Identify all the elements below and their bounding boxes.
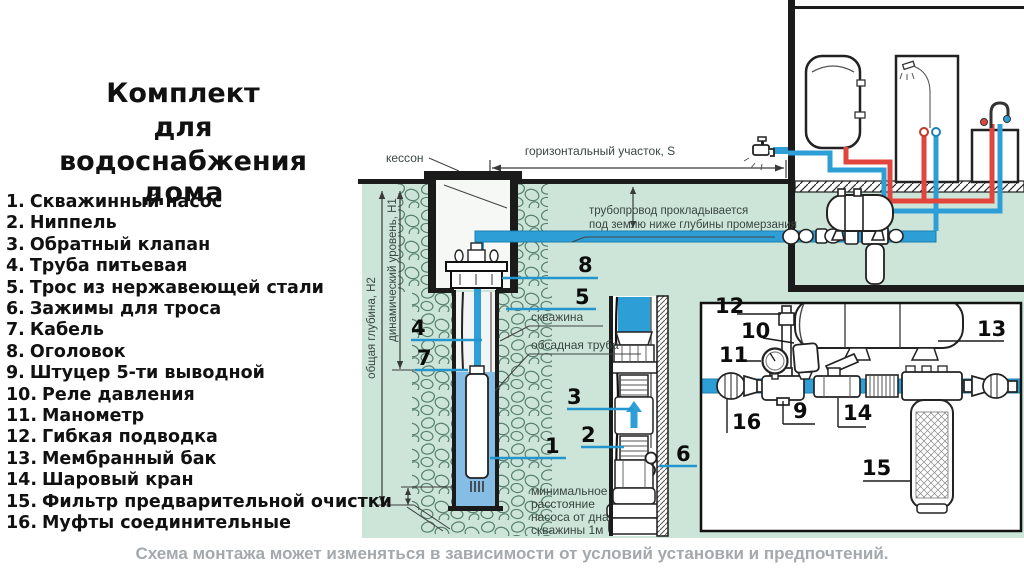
label-min-distance-2: расстояние (531, 497, 595, 511)
well-shaft (448, 288, 503, 511)
outdoor-faucet (744, 137, 788, 170)
cable-clamp-detail (646, 453, 657, 464)
callout-14: 14 (843, 403, 872, 424)
legend-item-1: 1.Скважинный насос (6, 192, 392, 213)
page-title-line1: Комплект (18, 78, 348, 109)
legend-item-3: 3.Обратный клапан (6, 235, 392, 256)
label-min-distance-4: скважины 1м (531, 523, 603, 537)
overview-tank (827, 195, 893, 231)
label-min-distance-1: минимальное (531, 484, 607, 498)
legend-item-5: 5.Трос из нержавеющей стали (6, 278, 392, 299)
label-total-depth-h2: общая глубина, Н2 (366, 253, 378, 403)
water-heater (806, 56, 860, 148)
corrugated-coupling (866, 375, 898, 397)
callout-9: 9 (793, 401, 808, 422)
callout-11: 11 (719, 345, 748, 366)
legend-item-7: 7.Кабель (6, 320, 392, 341)
overview-filter (866, 244, 884, 284)
callout-16: 16 (732, 412, 761, 433)
callout-8: 8 (578, 255, 593, 276)
legend-item-14: 14.Шаровый кран (6, 470, 392, 491)
legend-item-8: 8.Оголовок (6, 342, 392, 363)
shower-hot-valve (920, 128, 928, 136)
parts-legend: 1.Скважинный насос 2.Ниппель 3.Обратный … (6, 192, 392, 535)
legend-item-12: 12.Гибкая подводка (6, 427, 392, 448)
label-caisson: кессон (386, 151, 424, 165)
callout-13: 13 (977, 319, 1006, 340)
callout-1: 1 (545, 436, 560, 457)
shower-cold-valve (932, 128, 940, 136)
pump-detail-strip (607, 296, 668, 536)
legend-item-10: 10.Реле давления (6, 385, 392, 406)
label-horizontal-section: горизонтальный участок, S (470, 144, 730, 158)
callout-3: 3 (567, 387, 582, 408)
wall-pass-fitting (783, 229, 799, 244)
label-well: скважина (531, 310, 583, 324)
callout-6: 6 (676, 444, 691, 465)
callout-7: 7 (417, 348, 432, 369)
legend-item-6: 6.Зажимы для троса (6, 299, 392, 320)
sink-cabinet (972, 130, 1018, 182)
legend-item-15: 15.Фильтр предварительной очистки (6, 492, 392, 513)
callout-15: 15 (862, 458, 891, 479)
label-freeze-depth-1: трубопровод прокладывается (589, 205, 748, 217)
legend-item-11: 11.Манометр (6, 406, 392, 427)
label-dynamic-level-h1: динамический уровень, Н1 (387, 180, 399, 360)
callout-2: 2 (581, 425, 596, 446)
membrane-tank (795, 299, 963, 348)
callout-5: 5 (575, 287, 590, 308)
water-supply-kit-diagram: Комплект для водоснабжения дома 1.Скважи… (0, 0, 1024, 576)
legend-item-9: 9.Штуцер 5-ти выводной (6, 363, 392, 384)
callout-12: 12 (715, 296, 744, 317)
footer-note: Схема монтажа может изменяться в зависим… (0, 544, 1024, 564)
pre-filter (902, 366, 962, 513)
legend-item-16: 16.Муфты соединительные (6, 513, 392, 534)
label-casing-pipe: обсадная труба (531, 338, 619, 352)
shower-cabin (896, 56, 958, 182)
callout-4: 4 (411, 318, 426, 339)
page-title-line2: для (18, 112, 348, 143)
ground-line (358, 179, 788, 184)
legend-item-2: 2.Ниппель (6, 213, 392, 234)
label-min-distance-3: насоса от дна (531, 510, 609, 524)
legend-item-13: 13.Мембранный бак (6, 449, 392, 470)
legend-item-4: 4.Труба питьевая (6, 256, 392, 277)
callout-10: 10 (741, 321, 770, 342)
label-freeze-depth-2: под землю ниже глубины промерзания (589, 219, 797, 231)
